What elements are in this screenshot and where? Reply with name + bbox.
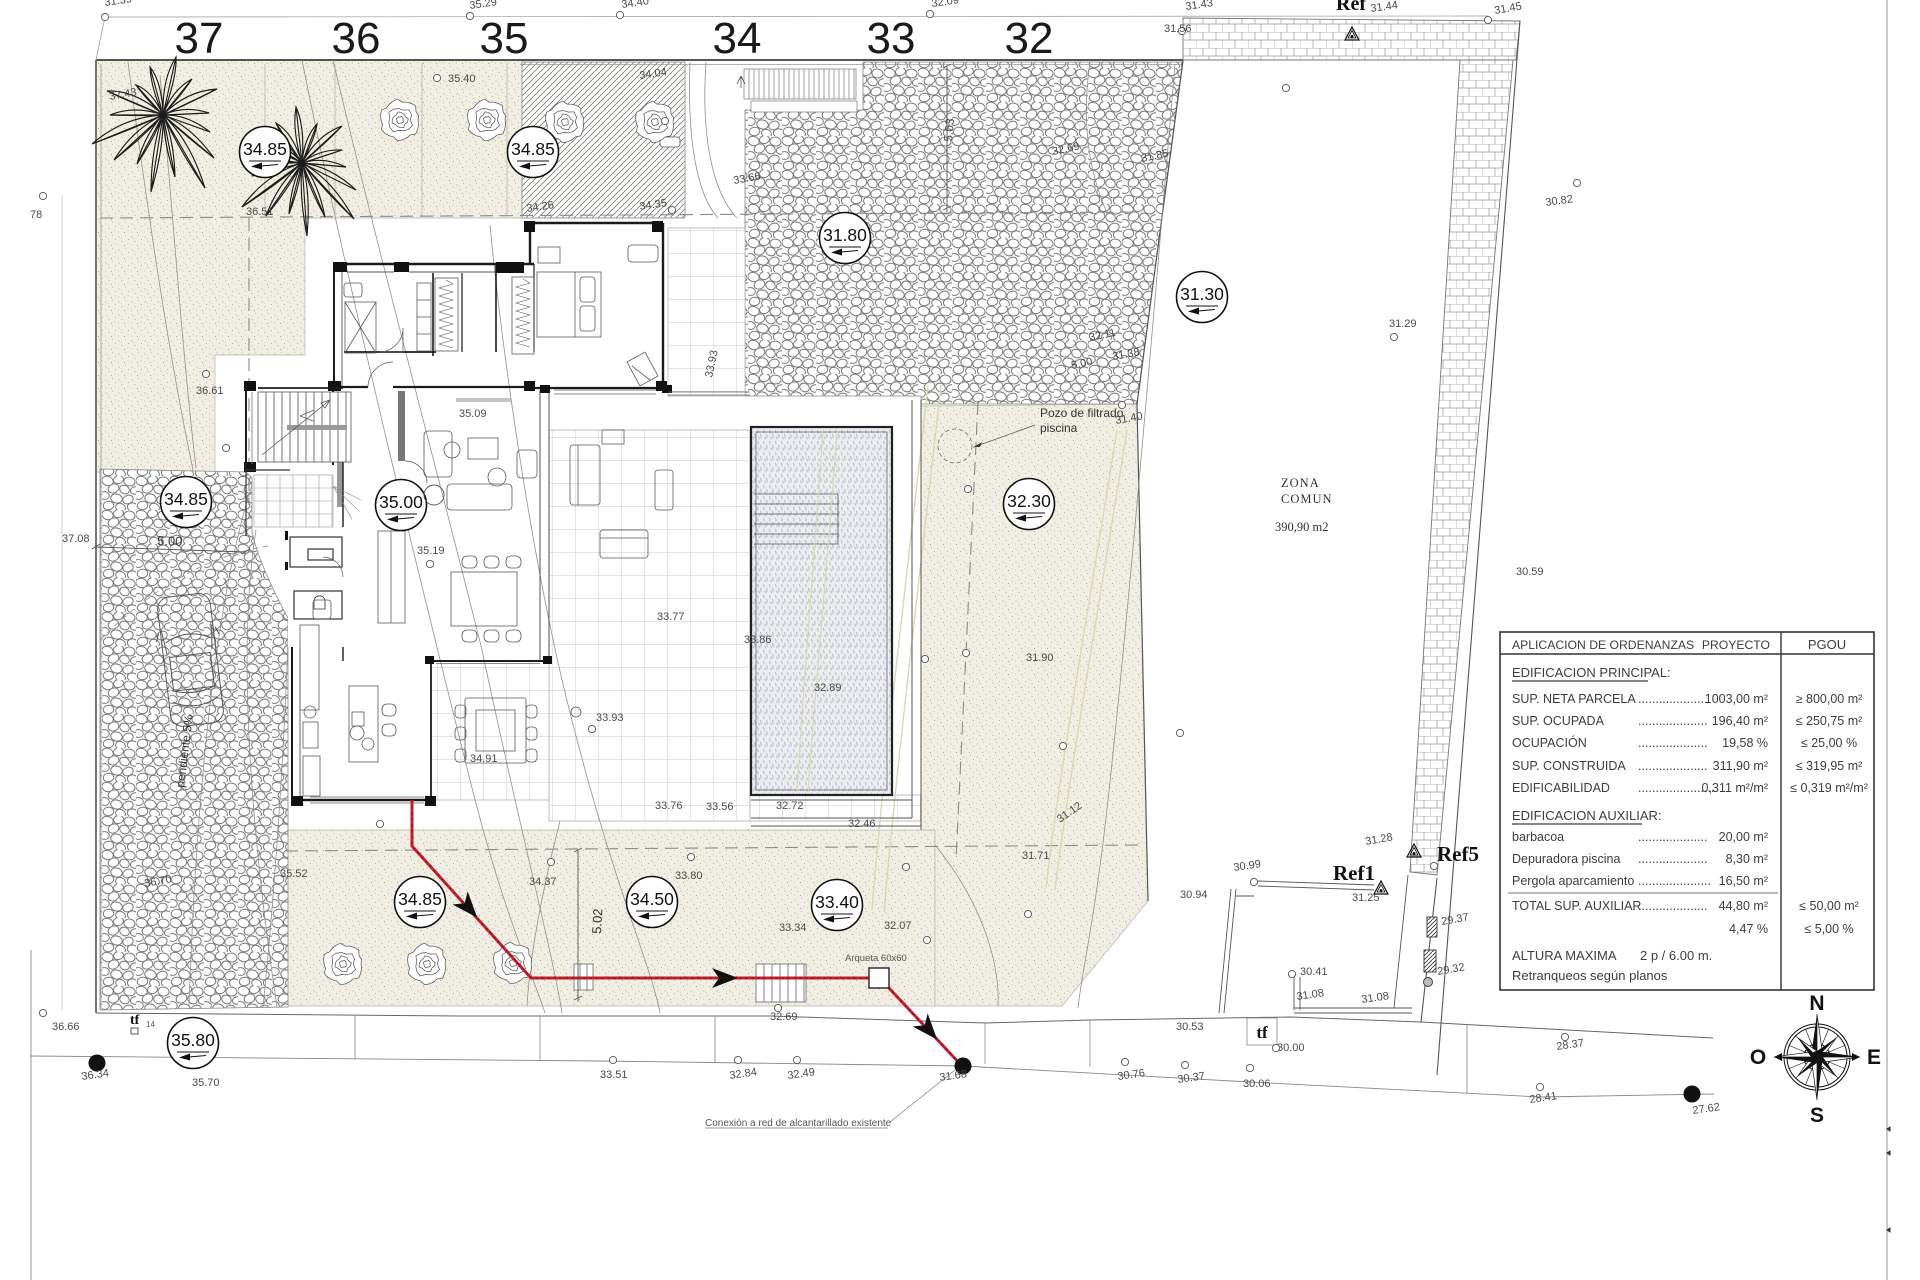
svg-text:36.66: 36.66 — [52, 1021, 80, 1033]
svg-text:37.08: 37.08 — [62, 533, 90, 545]
svg-text:....................: .................... — [1638, 736, 1707, 750]
svg-text:OCUPACIÓN: OCUPACIÓN — [1512, 735, 1587, 750]
svg-text:32.46: 32.46 — [848, 818, 876, 830]
svg-text:barbacoa: barbacoa — [1512, 830, 1564, 844]
svg-text:36: 36 — [332, 14, 381, 63]
svg-text:O: O — [1750, 1046, 1766, 1069]
svg-text:≤ 5,00 %: ≤ 5,00 % — [1804, 922, 1853, 936]
svg-text:34.91: 34.91 — [470, 753, 498, 765]
svg-text:30.00: 30.00 — [1277, 1042, 1305, 1054]
svg-text:33: 33 — [867, 14, 916, 63]
svg-text:Pozo de filtrado: Pozo de filtrado — [1040, 406, 1124, 420]
svg-text:31.56: 31.56 — [1164, 23, 1192, 35]
svg-text:SUP. CONSTRUIDA: SUP. CONSTRUIDA — [1512, 759, 1626, 773]
svg-text:196,40 m²: 196,40 m² — [1712, 714, 1768, 728]
svg-text:PROYECTO: PROYECTO — [1702, 638, 1770, 652]
svg-text:20,00 m²: 20,00 m² — [1719, 830, 1768, 844]
svg-text:78: 78 — [30, 209, 42, 221]
svg-text:33.51: 33.51 — [600, 1069, 628, 1081]
svg-text:44,80 m²: 44,80 m² — [1719, 899, 1768, 913]
svg-text:33.40: 33.40 — [815, 892, 859, 912]
svg-text:35.40: 35.40 — [448, 73, 476, 85]
svg-text:Depuradora piscina: Depuradora piscina — [1512, 852, 1620, 866]
svg-text:S: S — [1810, 1104, 1824, 1127]
svg-text:35.09: 35.09 — [459, 408, 487, 420]
svg-text:31.30: 31.30 — [1180, 284, 1224, 304]
svg-text:Ref1: Ref1 — [1333, 861, 1375, 885]
svg-text:≤ 25,00 %: ≤ 25,00 % — [1801, 736, 1857, 750]
svg-text:14: 14 — [146, 1020, 155, 1029]
svg-text:33.80: 33.80 — [675, 870, 703, 882]
svg-text:Pergola aparcamiento: Pergola aparcamiento — [1512, 874, 1634, 888]
svg-text:≥ 800,00 m²: ≥ 800,00 m² — [1796, 692, 1863, 706]
svg-text:37: 37 — [175, 14, 224, 63]
svg-text:SUP. OCUPADA: SUP. OCUPADA — [1512, 714, 1605, 728]
svg-text:30.94: 30.94 — [1180, 889, 1208, 901]
svg-text:35.80: 35.80 — [171, 1030, 215, 1050]
svg-text:30.53: 30.53 — [1176, 1021, 1204, 1033]
svg-text:....................: .................... — [1638, 852, 1707, 866]
svg-text:36.51: 36.51 — [246, 206, 274, 218]
svg-text:16,50 m²: 16,50 m² — [1719, 874, 1768, 888]
svg-text:31.90: 31.90 — [1026, 652, 1054, 664]
svg-text:35.70: 35.70 — [192, 1077, 220, 1089]
svg-text:34.85: 34.85 — [243, 139, 287, 159]
svg-text:33.56: 33.56 — [706, 801, 734, 813]
svg-text:30.59: 30.59 — [1516, 566, 1544, 578]
svg-text:35.52: 35.52 — [280, 868, 308, 880]
svg-text:33.77: 33.77 — [657, 611, 685, 623]
svg-text:32.89: 32.89 — [814, 682, 842, 694]
svg-text:piscina: piscina — [1040, 421, 1078, 435]
svg-text:32.07: 32.07 — [884, 920, 912, 932]
svg-text:1003,00 m²: 1003,00 m² — [1705, 692, 1768, 706]
svg-text:2 p / 6.00 m.: 2 p / 6.00 m. — [1640, 948, 1712, 963]
svg-text:....................: .................... — [1638, 692, 1707, 706]
svg-text:34.85: 34.85 — [511, 139, 555, 159]
svg-text:tf: tf — [1256, 1023, 1268, 1042]
svg-text:N: N — [1809, 992, 1824, 1015]
svg-text:5.02: 5.02 — [589, 908, 605, 934]
svg-text:19,58 %: 19,58 % — [1722, 736, 1768, 750]
svg-text:33.34: 33.34 — [779, 922, 807, 934]
svg-text:34.37: 34.37 — [529, 876, 557, 888]
svg-text:32.72: 32.72 — [776, 800, 804, 812]
svg-text:32: 32 — [1005, 14, 1054, 63]
svg-text:31.29: 31.29 — [1389, 318, 1417, 330]
svg-text:30.41: 30.41 — [1300, 966, 1328, 978]
svg-text:4,47 %: 4,47 % — [1729, 922, 1768, 936]
svg-text:35.19: 35.19 — [417, 545, 445, 557]
svg-text:EDIFICACION AUXILIAR:: EDIFICACION AUXILIAR: — [1512, 808, 1662, 823]
svg-text:Ref5: Ref5 — [1437, 842, 1479, 866]
svg-text:33.93: 33.93 — [596, 712, 624, 724]
svg-text:5.03: 5.03 — [941, 117, 957, 142]
svg-text:8,30 m²: 8,30 m² — [1726, 852, 1768, 866]
svg-text:5.00: 5.00 — [157, 533, 183, 549]
svg-text:390,90 m2: 390,90 m2 — [1275, 520, 1328, 534]
svg-text:ZONA: ZONA — [1281, 476, 1320, 490]
svg-text:....................: .................... — [1638, 759, 1707, 773]
svg-text:34: 34 — [713, 14, 762, 63]
svg-text:31.71: 31.71 — [1022, 850, 1050, 862]
svg-text:30.06: 30.06 — [1243, 1078, 1271, 1090]
svg-text:PGOU: PGOU — [1808, 637, 1846, 652]
svg-text:SUP. NETA PARCELA: SUP. NETA PARCELA — [1512, 692, 1636, 706]
svg-text:≤ 0,319 m²/m²: ≤ 0,319 m²/m² — [1790, 781, 1868, 795]
svg-text:....................: .................... — [1638, 830, 1707, 844]
svg-text:....................: .................... — [1638, 899, 1707, 913]
svg-text:E: E — [1867, 1046, 1881, 1069]
svg-text:APLICACION DE ORDENANZAS: APLICACION DE ORDENANZAS — [1512, 638, 1694, 652]
svg-text:ALTURA MAXIMA: ALTURA MAXIMA — [1512, 948, 1617, 963]
svg-text:35.00: 35.00 — [379, 492, 423, 512]
svg-text:31.80: 31.80 — [823, 225, 867, 245]
svg-text:≤ 319,95 m²: ≤ 319,95 m² — [1796, 759, 1863, 773]
svg-text:0,311 m²/m²: 0,311 m²/m² — [1702, 781, 1768, 795]
svg-text:.....................: ..................... — [1638, 874, 1711, 888]
svg-text:Ref: Ref — [1336, 0, 1366, 15]
svg-text:33.86: 33.86 — [744, 634, 772, 646]
svg-text:....................: .................... — [1638, 714, 1707, 728]
svg-text:32.30: 32.30 — [1007, 491, 1051, 511]
svg-text:36.61: 36.61 — [196, 385, 224, 397]
svg-text:Arqueta 60x60: Arqueta 60x60 — [845, 953, 907, 964]
svg-text:tf: tf — [130, 1013, 140, 1028]
svg-text:32.69: 32.69 — [770, 1011, 798, 1023]
svg-text:311,90 m²: 311,90 m² — [1713, 759, 1768, 773]
svg-text:≤ 250,75 m²: ≤ 250,75 m² — [1796, 714, 1863, 728]
svg-text:≤ 50,00 m²: ≤ 50,00 m² — [1799, 899, 1859, 913]
svg-text:Retranqueos según planos: Retranqueos según planos — [1512, 968, 1668, 983]
svg-text:TOTAL SUP. AUXILIAR: TOTAL SUP. AUXILIAR — [1512, 899, 1641, 913]
svg-text:34.85: 34.85 — [398, 889, 442, 909]
svg-text:34.50: 34.50 — [630, 889, 674, 909]
svg-text:EDIFICABILIDAD: EDIFICABILIDAD — [1512, 781, 1610, 795]
svg-text:34.85: 34.85 — [164, 489, 208, 509]
svg-text:33.76: 33.76 — [655, 800, 683, 812]
svg-text:EDIFICACION PRINCIPAL:: EDIFICACION PRINCIPAL: — [1512, 665, 1671, 680]
svg-text:COMUN: COMUN — [1281, 492, 1333, 506]
svg-text:35: 35 — [480, 14, 529, 63]
svg-text:Conexión a red de alcantarilla: Conexión a red de alcantarillado existen… — [705, 1118, 892, 1129]
